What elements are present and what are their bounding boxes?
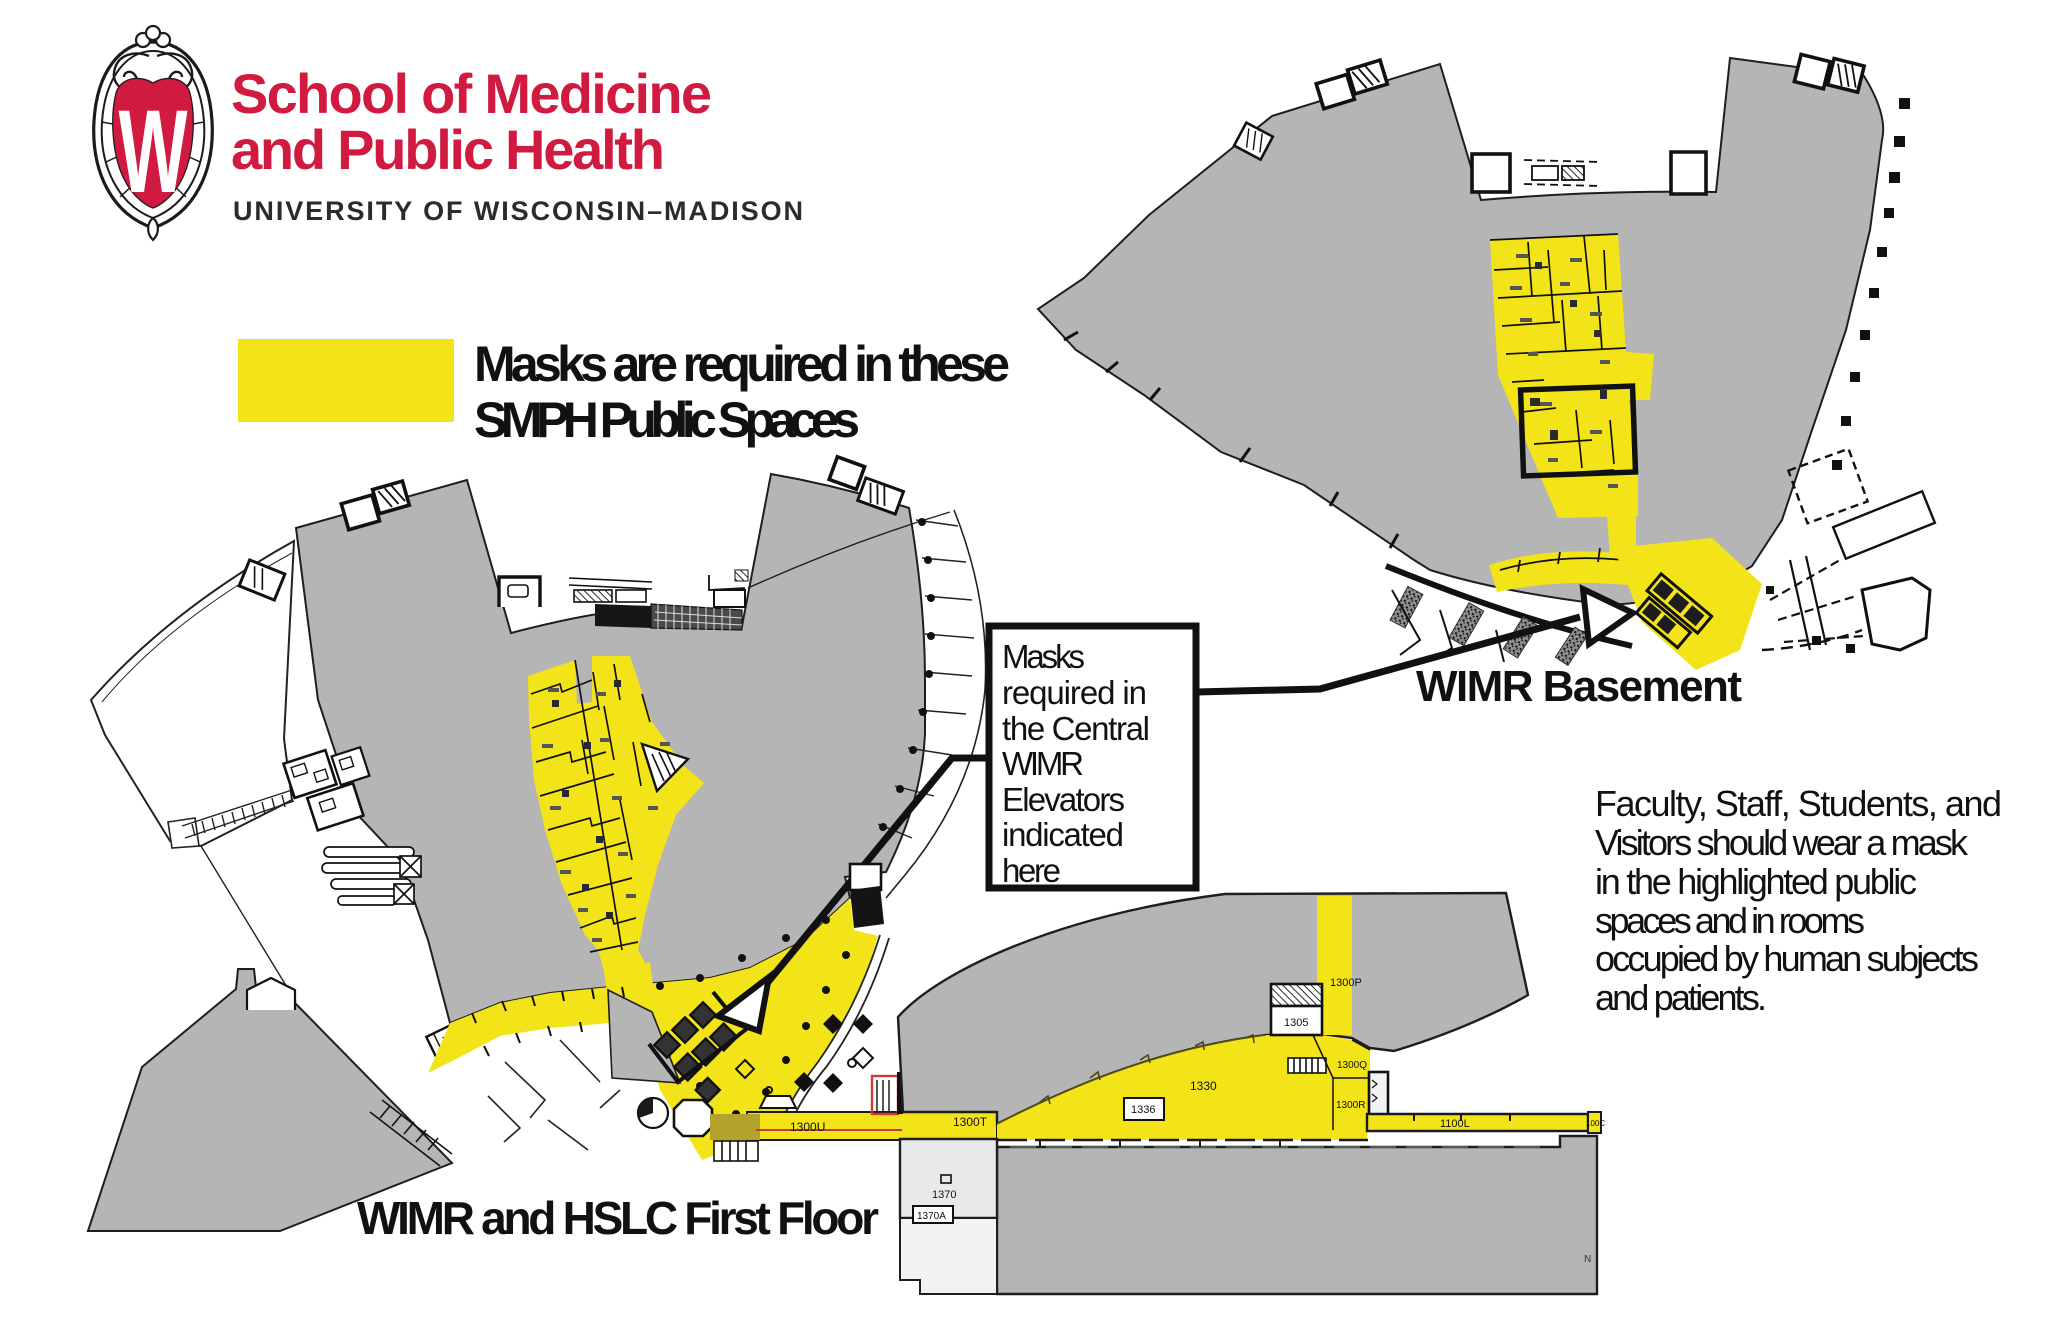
svg-text:and patients.: and patients. bbox=[1595, 977, 1767, 1018]
svg-text:required in: required in bbox=[1002, 674, 1147, 711]
svg-text:1100L: 1100L bbox=[1440, 1118, 1470, 1130]
svg-text:occupied by human subjects: occupied by human subjects bbox=[1595, 938, 1979, 979]
svg-text:N: N bbox=[1584, 1254, 1591, 1265]
svg-text:W: W bbox=[118, 85, 187, 217]
svg-text:100C: 100C bbox=[1586, 1119, 1605, 1128]
svg-text:and Public Health: and Public Health bbox=[231, 118, 665, 181]
svg-text:1300T: 1300T bbox=[953, 1115, 988, 1129]
svg-text:UNIVERSITY OF WISCONSIN–MADISO: UNIVERSITY OF WISCONSIN–MADISON bbox=[233, 196, 803, 226]
svg-text:1300Q: 1300Q bbox=[1337, 1060, 1367, 1071]
svg-text:1370: 1370 bbox=[932, 1189, 956, 1201]
svg-text:1370A: 1370A bbox=[917, 1211, 946, 1222]
svg-text:Masks are required in these: Masks are required in these bbox=[474, 336, 1010, 392]
svg-text:WIMR: WIMR bbox=[1002, 745, 1084, 782]
svg-text:WIMR Basement: WIMR Basement bbox=[1416, 662, 1742, 711]
svg-text:in the highlighted public: in the highlighted public bbox=[1595, 861, 1917, 902]
svg-text:Elevators: Elevators bbox=[1002, 781, 1125, 818]
svg-text:here: here bbox=[1002, 852, 1061, 889]
svg-text:School of Medicine: School of Medicine bbox=[231, 62, 712, 125]
svg-text:spaces and in rooms: spaces and in rooms bbox=[1595, 900, 1865, 941]
svg-text:Faculty, Staff, Students, and: Faculty, Staff, Students, and bbox=[1595, 783, 2002, 824]
svg-text:1300U: 1300U bbox=[790, 1120, 825, 1134]
svg-text:indicated: indicated bbox=[1002, 816, 1124, 853]
svg-text:1300P: 1300P bbox=[1330, 977, 1362, 989]
svg-text:WIMR and HSLC First Floor: WIMR and HSLC First Floor bbox=[357, 1192, 879, 1244]
svg-text:the Central: the Central bbox=[1002, 710, 1150, 747]
svg-text:SMPH Public Spaces: SMPH Public Spaces bbox=[474, 392, 860, 448]
svg-text:1305: 1305 bbox=[1284, 1017, 1308, 1029]
svg-text:Masks: Masks bbox=[1002, 638, 1085, 675]
svg-text:1336: 1336 bbox=[1131, 1104, 1155, 1116]
svg-text:Visitors should wear a mask: Visitors should wear a mask bbox=[1595, 822, 1969, 863]
svg-text:1300R: 1300R bbox=[1336, 1100, 1365, 1111]
svg-text:1330: 1330 bbox=[1190, 1079, 1217, 1093]
